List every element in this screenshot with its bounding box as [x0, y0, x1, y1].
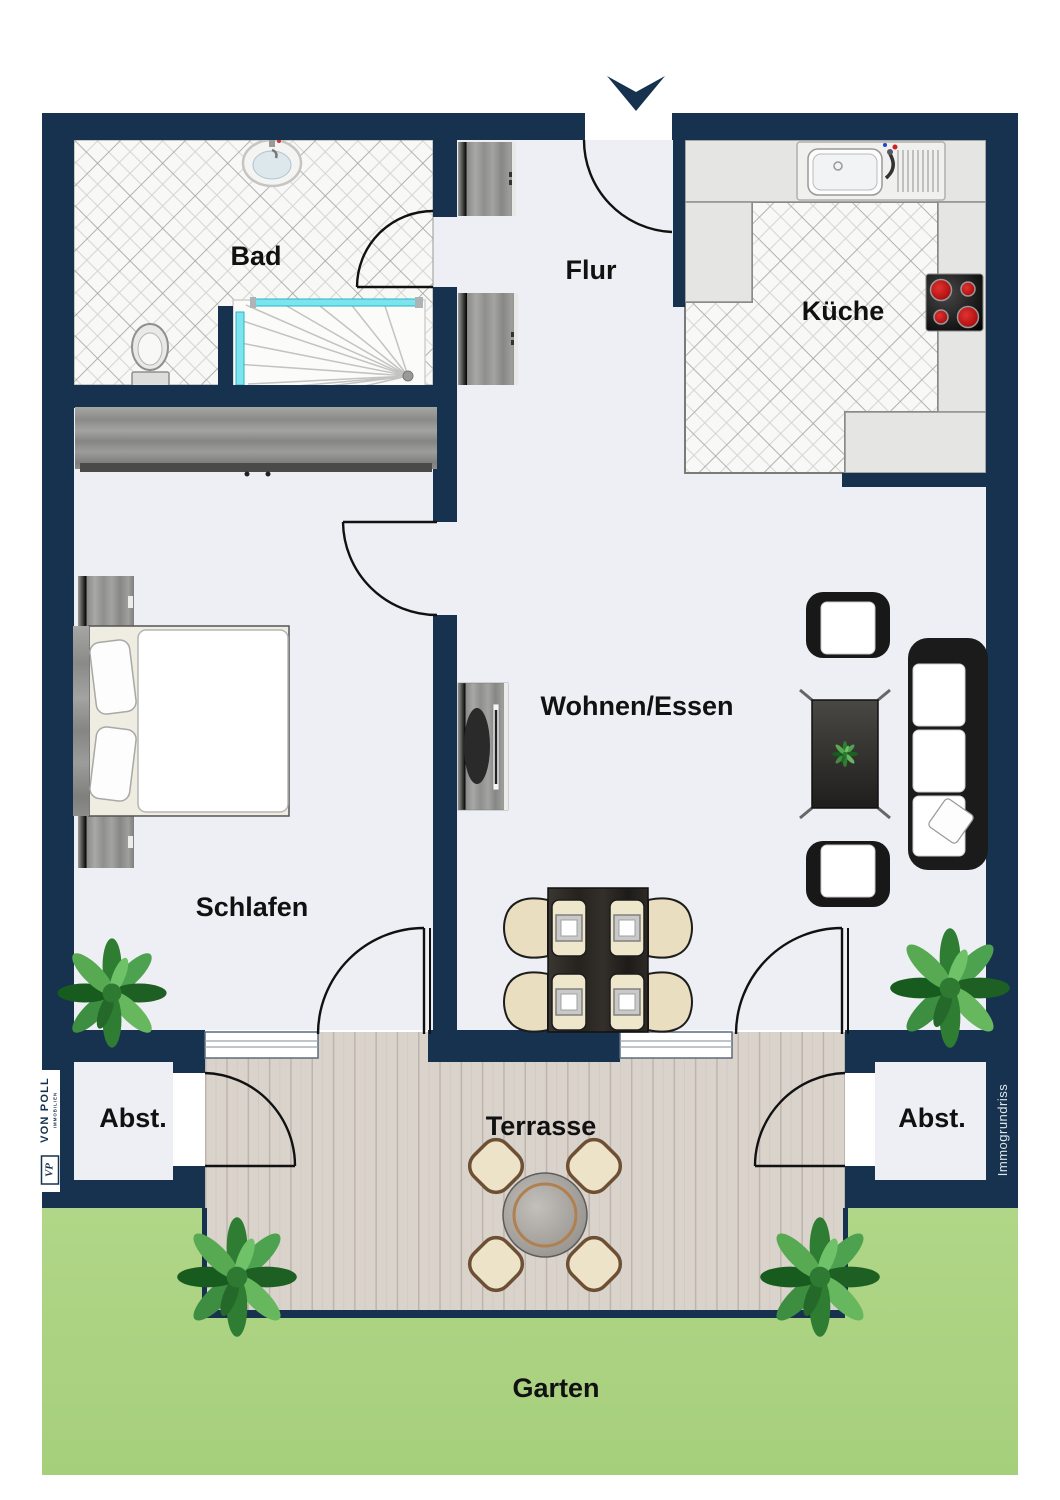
room-label-flur: Flur — [566, 255, 617, 285]
room-label-abst-left: Abst. — [99, 1103, 167, 1133]
shower-glass-top — [253, 299, 421, 306]
room-label-garten: Garten — [512, 1373, 599, 1403]
agency-subtitle: IMMOBILIEN — [53, 1092, 58, 1128]
agency-name: VON POLL — [39, 1077, 51, 1143]
bed-duvet — [138, 630, 288, 812]
nightstand-bottom — [78, 816, 134, 868]
nightstand-top — [78, 576, 134, 628]
dresser — [75, 407, 437, 477]
dining-chair — [648, 972, 692, 1031]
room-label-terrasse: Terrasse — [486, 1111, 597, 1141]
shower — [233, 297, 425, 387]
coffee-table-plant — [832, 741, 858, 767]
window-bedroom — [205, 1032, 318, 1058]
dining-chair — [504, 898, 548, 957]
agency-monogram: VP — [44, 1163, 56, 1177]
shower-glass-left — [236, 312, 244, 385]
plant-terrace-right — [760, 1217, 880, 1337]
window-living — [620, 1032, 732, 1058]
agency-logo: VON POLL IMMOBILIEN VP — [39, 1070, 60, 1192]
stove — [926, 274, 983, 331]
plant-terrace-left — [177, 1217, 297, 1337]
floor-plan-canvas: Bad Flur Küche Wohnen/Essen Schlafen Abs… — [0, 0, 1060, 1500]
room-label-kueche: Küche — [802, 296, 885, 326]
watermark-text: Immogrundriss — [995, 1084, 1010, 1176]
room-label-abst-right: Abst. — [898, 1103, 966, 1133]
tv-sideboard — [458, 683, 508, 810]
terrace-planks — [205, 1032, 845, 1318]
toilet — [132, 324, 169, 387]
floor-plan-page: Bad Flur Küche Wohnen/Essen Schlafen Abs… — [0, 0, 1060, 1500]
kitchen-sink — [797, 142, 945, 200]
bed — [73, 626, 289, 816]
room-label-bad: Bad — [230, 241, 281, 271]
armchair-bottom — [806, 841, 890, 907]
terrace-table — [503, 1173, 587, 1257]
bed-headboard — [73, 626, 89, 816]
terrace-edge-bottom — [205, 1310, 845, 1318]
coffee-table — [800, 690, 890, 818]
dining-chair — [504, 972, 548, 1031]
entrance-arrow-icon — [607, 76, 665, 111]
wardrobe-upper — [458, 142, 516, 216]
plant-living — [890, 928, 1010, 1048]
wardrobe-lower — [458, 293, 518, 385]
terrace-deck — [202, 1032, 848, 1318]
dining-chair — [648, 898, 692, 957]
armchair-top — [806, 592, 890, 658]
room-label-schlafen: Schlafen — [196, 892, 309, 922]
room-label-wohnen-essen: Wohnen/Essen — [540, 691, 733, 721]
plant-bedroom — [57, 938, 166, 1047]
sofa — [908, 638, 988, 870]
